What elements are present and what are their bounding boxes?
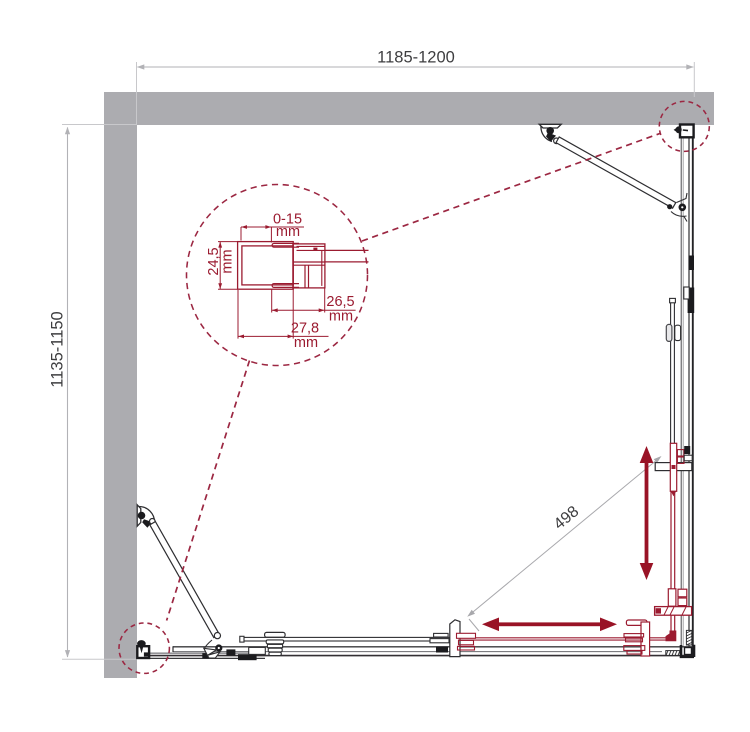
svg-text:mm: mm — [276, 224, 300, 240]
svg-text:mm: mm — [294, 335, 318, 351]
svg-text:1135-1150: 1135-1150 — [49, 311, 67, 387]
svg-text:mm: mm — [329, 309, 353, 325]
svg-text:mm: mm — [220, 249, 236, 273]
svg-text:27,8: 27,8 — [291, 320, 319, 336]
svg-text:1185-1200: 1185-1200 — [377, 49, 455, 67]
